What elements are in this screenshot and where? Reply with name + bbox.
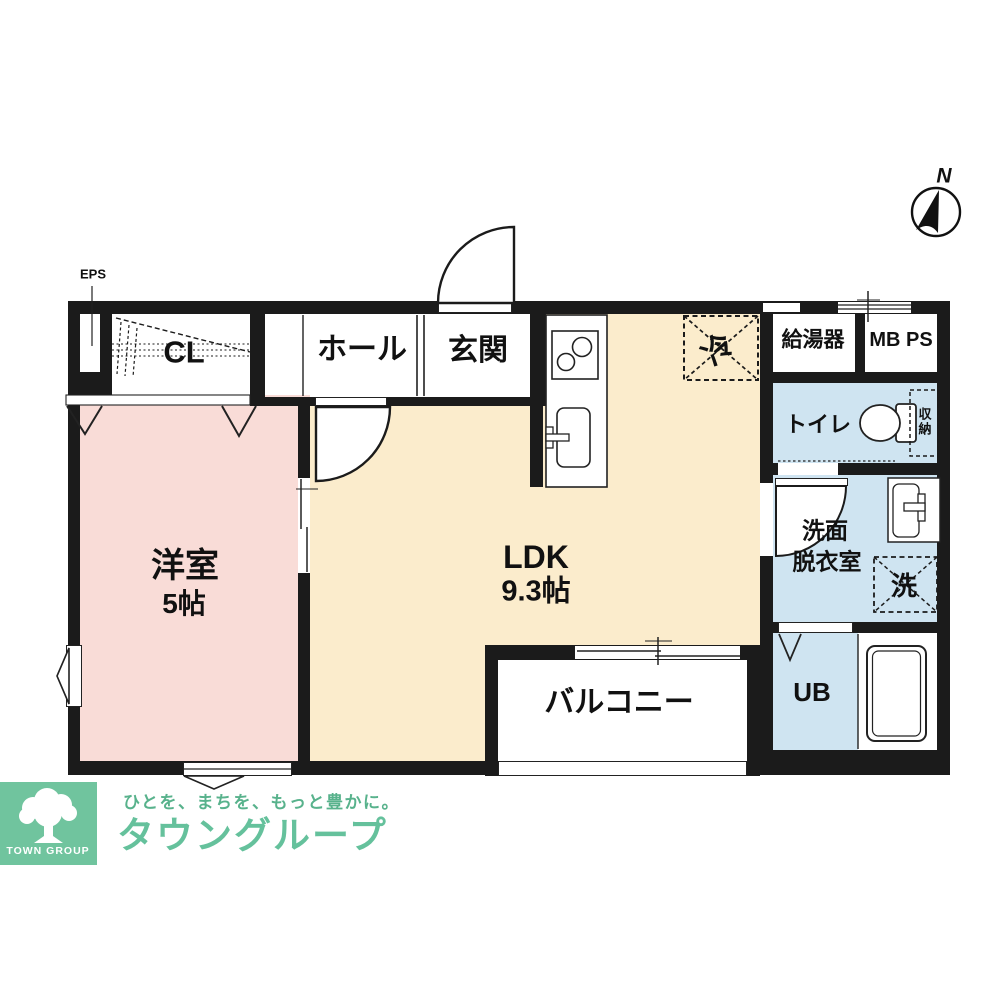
- kitchen-counter: [546, 315, 607, 487]
- mbps-window-lines: [838, 291, 911, 322]
- room-label-water-heater: 給湯器: [782, 330, 845, 351]
- closet-door-track: [66, 395, 250, 405]
- brand-logo-text: TOWN GROUP: [6, 846, 89, 857]
- floorplan-canvas: EPS CL ホール 玄関 冷 給湯器 MB PS トイレ 収納 洗面 脱衣室 …: [0, 0, 1000, 999]
- closet-door-v-right: [222, 406, 256, 436]
- hall-door-arc: [316, 407, 390, 481]
- toilet-icon: [860, 404, 916, 442]
- room-label-unit-bath: UB: [793, 679, 831, 705]
- room-label-entrance: 玄関: [448, 336, 508, 366]
- sliding-door-lines: [296, 479, 318, 572]
- washbasin-icon: [888, 478, 940, 542]
- room-label-closet: CL: [163, 337, 204, 368]
- closet-door-v-left: [67, 406, 102, 434]
- room-label-storage: 収納: [918, 407, 931, 437]
- room-label-hall: ホール: [317, 335, 407, 365]
- room-label-mbps: MB PS: [869, 330, 932, 350]
- room-label-washroom-2: 脱衣室: [793, 551, 862, 574]
- compass-north-label: N: [936, 166, 951, 187]
- balcony-sliding-sashes: [577, 637, 740, 665]
- window-triangle-left: [57, 648, 69, 704]
- room-label-ldk-size: 9.3帖: [501, 578, 570, 607]
- room-label-washroom-1: 洗面: [802, 520, 848, 543]
- room-label-balcony: バルコニー: [544, 688, 693, 718]
- brand-company-name: タウングループ: [117, 805, 388, 859]
- entrance-door-arc: [438, 227, 514, 303]
- stove-icon: [552, 331, 598, 379]
- room-label-washer: 洗: [891, 573, 917, 599]
- room-label-western: 洋室: [151, 549, 219, 583]
- unit-bath-door-v: [779, 634, 801, 660]
- compass-icon: [912, 188, 960, 236]
- room-label-ldk: LDK: [503, 541, 569, 573]
- room-label-western-size: 5帖: [162, 590, 206, 618]
- eps-label: EPS: [80, 268, 106, 281]
- bathtub-icon: [858, 634, 926, 749]
- room-label-toilet: トイレ: [785, 414, 851, 436]
